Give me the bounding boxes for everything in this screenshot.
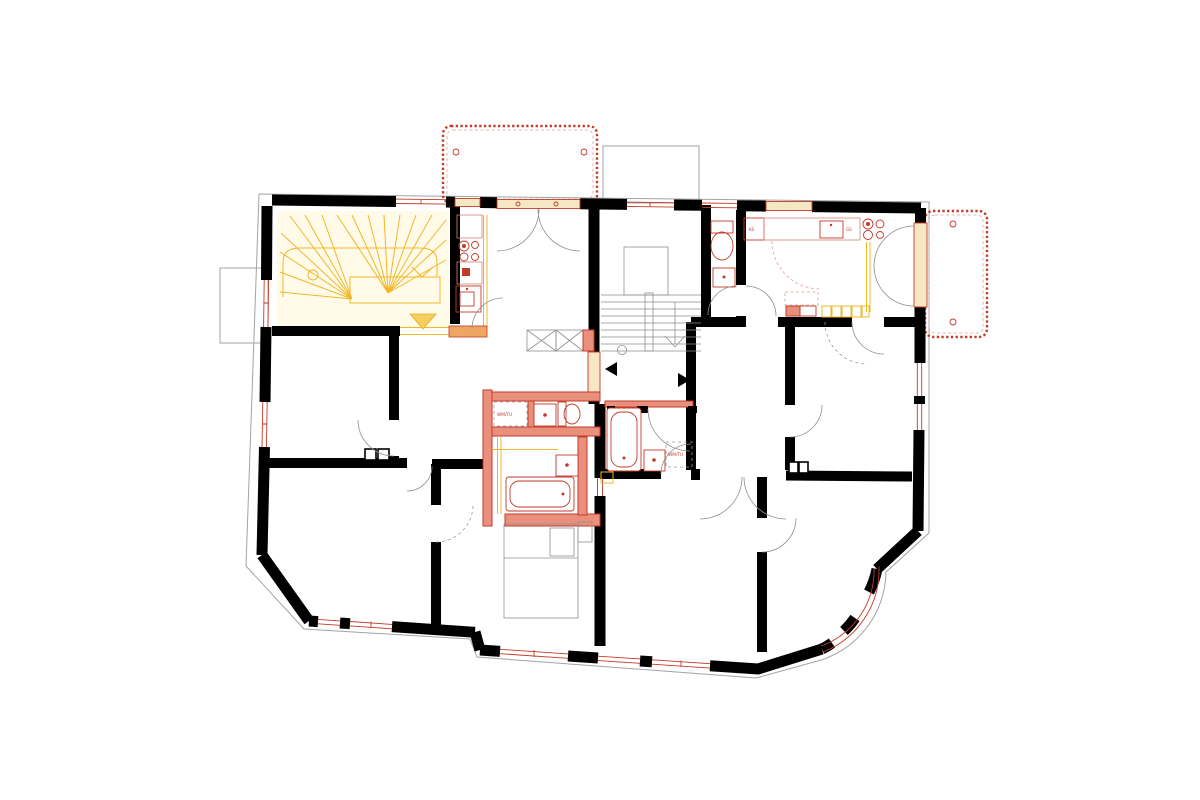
- floor-plan-drawing: KS GS: [0, 0, 1200, 800]
- balcony-right: [925, 211, 987, 337]
- sink-icon: [820, 221, 843, 238]
- new-sill: [449, 326, 487, 337]
- balcony-door-top: [497, 200, 580, 209]
- wc-room: [711, 221, 735, 287]
- bedroom-furniture: [504, 522, 592, 618]
- washbasin-icon: [556, 455, 578, 476]
- bathtub-icon: [607, 408, 641, 471]
- balcony-top: [443, 126, 597, 203]
- dishwasher-label: GS: [846, 227, 852, 232]
- balcony-door-right: [914, 223, 927, 307]
- washer-label-right: WM/TU: [668, 452, 683, 458]
- bathtub-icon: [506, 477, 574, 511]
- landing-new-wall: [605, 401, 693, 407]
- bed: [504, 522, 592, 618]
- fridge-label: KS: [749, 227, 755, 232]
- drain-icon: [950, 221, 956, 227]
- toilet-icon: [558, 402, 580, 426]
- washing-machine-icon: WM/TU: [494, 402, 527, 426]
- stove-icon: [863, 219, 884, 240]
- drain-icon: [453, 149, 459, 155]
- bathroom-left: WM/TU: [483, 390, 600, 526]
- winder-stair-demolition: [277, 211, 449, 329]
- entrance-door: [598, 656, 640, 663]
- washbasin-icon: [534, 404, 556, 426]
- washer-label-left: WM/TU: [497, 412, 512, 418]
- toilet-icon: [711, 221, 733, 260]
- drain-icon: [950, 319, 956, 325]
- kitchen-right: KS GS: [744, 218, 884, 317]
- stove-icon: [459, 241, 479, 261]
- hood-icon: [462, 268, 470, 276]
- top-annex-outline: [603, 146, 699, 203]
- entry-arrow-left-icon: [605, 362, 617, 376]
- duct-shafts: [527, 330, 594, 351]
- washbasin-icon: [713, 268, 735, 287]
- stair-void-outline: [624, 247, 668, 295]
- drain-icon: [581, 149, 587, 155]
- demolished-cabinets: [822, 306, 869, 317]
- floor-plan-canvas: KS GS: [0, 0, 1200, 800]
